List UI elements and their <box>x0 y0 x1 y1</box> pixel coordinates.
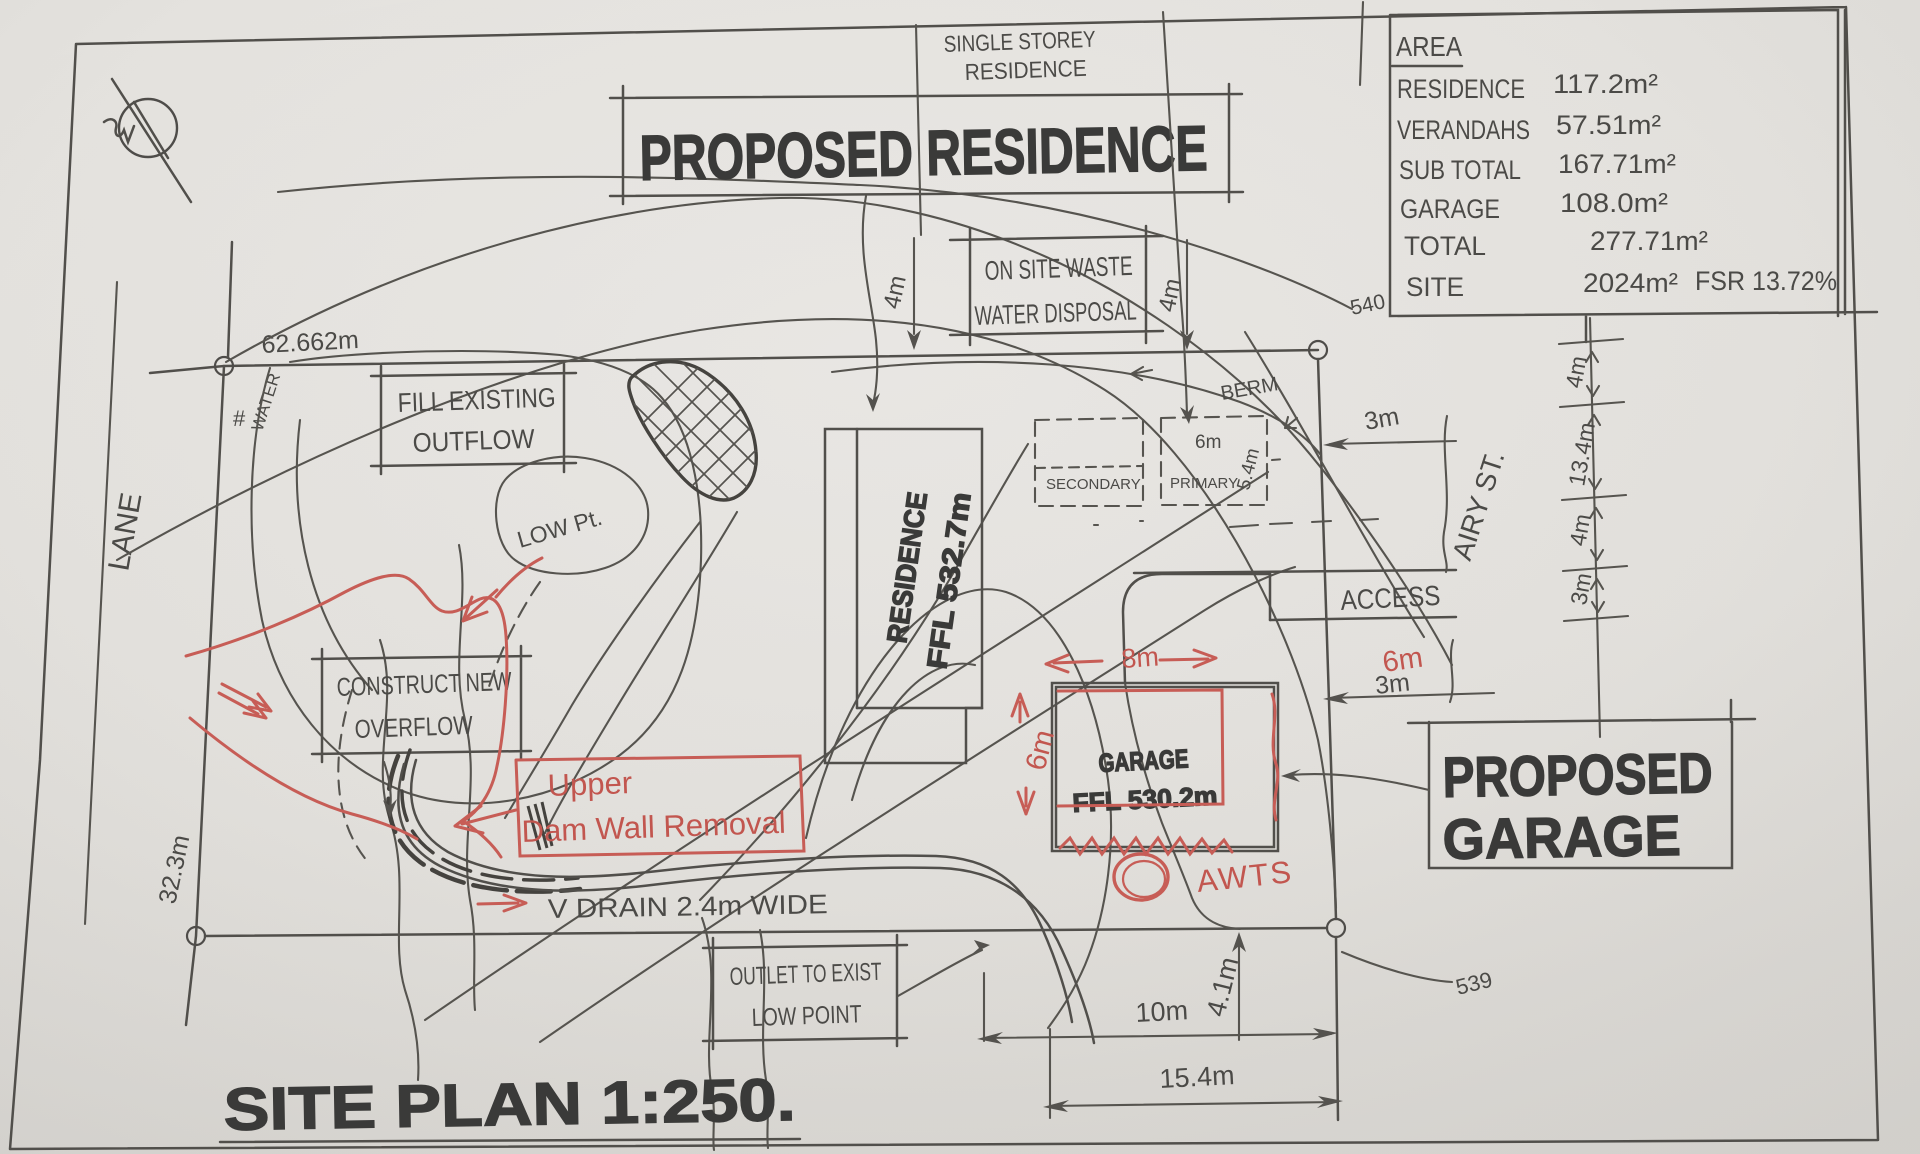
svg-text:2024m²: 2024m² <box>1583 268 1678 298</box>
svg-text:167.71m²: 167.71m² <box>1558 149 1676 179</box>
svg-text:CONSTRUCT NEW: CONSTRUCT NEW <box>336 666 512 702</box>
svg-text:PRIMARY: PRIMARY <box>1170 475 1238 492</box>
svg-text:GARAGE: GARAGE <box>1098 743 1189 778</box>
svg-text:TOTAL: TOTAL <box>1404 231 1486 261</box>
svg-text:Upper: Upper <box>547 765 633 803</box>
svg-text:WATER DISPOSAL: WATER DISPOSAL <box>974 295 1137 331</box>
svg-text:OUTLET TO EXIST: OUTLET TO EXIST <box>729 958 882 991</box>
svg-text:FILL EXISTING: FILL EXISTING <box>397 383 556 418</box>
svg-text:RESIDENCE: RESIDENCE <box>1397 74 1525 104</box>
svg-text:OVERFLOW: OVERFLOW <box>354 710 473 744</box>
svg-text:108.0m²: 108.0m² <box>1560 188 1668 218</box>
svg-text:PROPOSED: PROPOSED <box>1442 741 1713 810</box>
svg-text:ACCESS: ACCESS <box>1340 580 1441 616</box>
svg-text:SITE PLAN 1:250.: SITE PLAN 1:250. <box>223 1066 796 1143</box>
svg-text:PROPOSED RESIDENCE: PROPOSED RESIDENCE <box>639 112 1208 194</box>
svg-text:57.51m²: 57.51m² <box>1556 110 1661 140</box>
svg-text:SITE: SITE <box>1406 272 1464 302</box>
svg-text:4m: 4m <box>1560 354 1591 390</box>
svg-text:SINGLE STOREY: SINGLE STOREY <box>943 26 1096 57</box>
svg-text:SECONDARY: SECONDARY <box>1046 476 1141 493</box>
svg-text:RESIDENCE: RESIDENCE <box>964 55 1087 85</box>
svg-text:6m: 6m <box>1195 432 1221 453</box>
svg-text:8m: 8m <box>1120 641 1160 674</box>
svg-text:4m: 4m <box>1564 512 1595 548</box>
svg-text:GARAGE: GARAGE <box>1442 804 1681 872</box>
svg-text:3m: 3m <box>1362 402 1401 436</box>
svg-text:3m: 3m <box>1565 571 1596 607</box>
svg-text:V DRAIN 2.4m WIDE: V DRAIN 2.4m WIDE <box>548 889 828 924</box>
svg-text:LOW POINT: LOW POINT <box>751 1000 862 1032</box>
svg-text:VERANDAHS: VERANDAHS <box>1397 115 1530 145</box>
svg-text:ON SITE WASTE: ON SITE WASTE <box>984 251 1133 286</box>
svg-text:SUB TOTAL: SUB TOTAL <box>1399 155 1521 185</box>
svg-text:277.71m²: 277.71m² <box>1590 226 1708 256</box>
svg-text:OUTFLOW: OUTFLOW <box>412 424 535 458</box>
svg-text:#: # <box>233 406 246 431</box>
svg-text:10m: 10m <box>1135 995 1189 1028</box>
svg-text:15.4m: 15.4m <box>1159 1060 1236 1094</box>
svg-text:62.662m: 62.662m <box>261 326 360 359</box>
svg-text:GARAGE: GARAGE <box>1400 194 1500 224</box>
svg-text:AREA: AREA <box>1396 31 1462 62</box>
svg-text:FSR 13.72%: FSR 13.72% <box>1695 266 1837 296</box>
svg-text:117.2m²: 117.2m² <box>1553 69 1658 99</box>
